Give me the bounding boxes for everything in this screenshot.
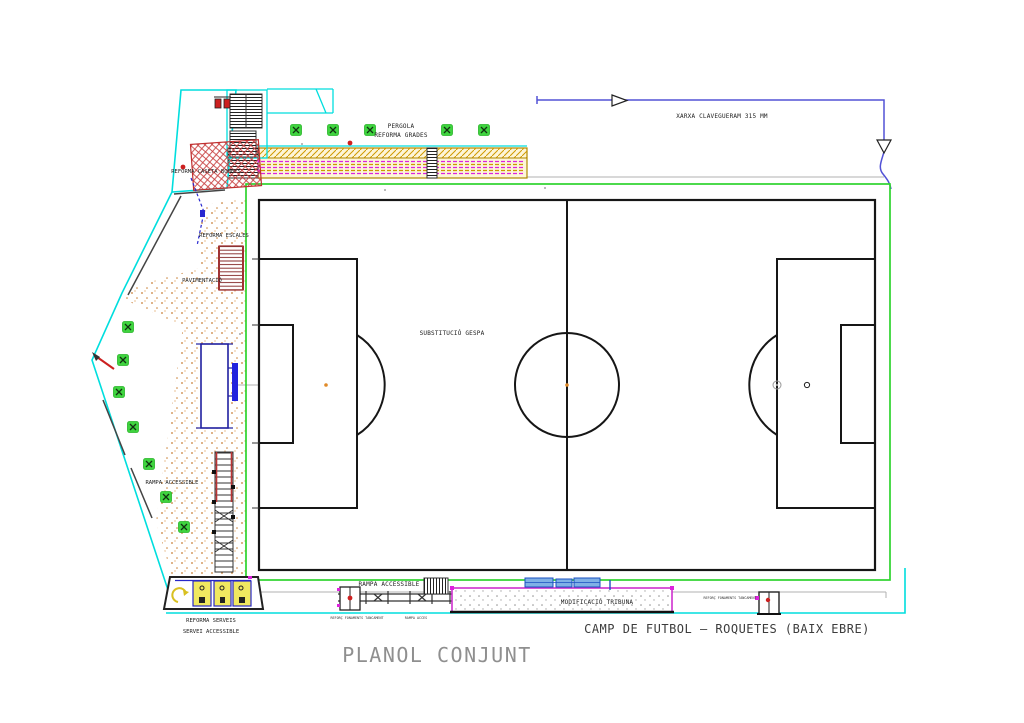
survey-arrow [92,352,114,369]
pump-equipment-icon [214,97,231,108]
tree-icon [128,422,139,433]
sheet-title: PLANOL CONJUNT [342,643,532,667]
flow-arrow-down-icon [877,140,891,153]
label-rampa-acces: RAMPA ACCES [405,616,427,620]
flow-arrow-right-icon [612,95,627,106]
label-pavimentacio: PAVIMENTACIÓ [182,277,222,284]
tree-icon [161,492,172,503]
marker-dot-red [348,141,353,146]
label-reforma-grades: REFORMA GRADES [374,132,428,139]
escales-stair [219,246,243,290]
penalty-area-left [259,259,357,508]
label-xarxa-clavegueram: XARXA CLAVEGUERAM 315 MM [676,113,768,120]
site-plan-canvas: PERGOLA REFORMA GRADES XARXA CLAVEGUERAM… [0,0,1024,723]
blue-panel [232,363,238,401]
label-rampa-accessible-bottom: RAMPA ACCESSIBLE [359,581,420,588]
penalty-arc-left [357,335,385,435]
marker-dot-red [766,598,770,602]
marker-dot-red [348,596,353,601]
penalty-area-right [777,259,875,508]
label-reforma-escales: REFORMA ESCALES [199,233,249,239]
access-ramp-ladder [212,452,235,572]
penalty-spot-right [804,382,809,387]
label-pergola: PERGOLA [388,123,415,130]
sewer-line [537,95,891,189]
services-block [164,576,263,609]
tribuna-block [450,578,674,612]
goal-area-left [259,325,293,443]
project-title: CAMP DE FUTBOL – ROQUETES (BAIX EBRE) [584,622,870,636]
goal-area-right [841,325,875,443]
tree-icon [144,459,155,470]
tree-icon [179,522,190,533]
tree-icon [479,125,490,136]
center-spot [565,383,569,387]
label-reforc-fonaments-left: REFORÇ FONAMENTS TANCAMENT [330,616,383,620]
label-rampa-accessible-left: RAMPA ACCESSIBLE [146,480,199,486]
penalty-spot-left [324,383,328,387]
label-modificacio-tribuna: MODIFICACIÓ TRIBUNA [561,599,634,606]
fence-foundation-right [755,592,781,614]
label-servei-accessible: SERVEI ACCESSIBLE [183,629,239,635]
label-reforma-serveis: REFORMA SERVEIS [186,618,236,624]
tree-icon [291,125,302,136]
tree-icon [123,322,134,333]
label-reforma-caseta-bombes: REFORMA CASETA BOMBES [171,169,241,175]
label-reforc-fonaments-right: REFORÇ FONAMENTS TANCAMENT [703,596,756,600]
drawing-titles: CAMP DE FUTBOL – ROQUETES (BAIX EBRE) PL… [342,622,870,667]
tree-icon [442,125,453,136]
tree-icon [118,355,129,366]
label-substitucio-gespa: SUBSTITUCIÓ GESPA [420,330,485,337]
drawing-sheet: PERGOLA REFORMA GRADES XARXA CLAVEGUERAM… [0,0,1024,723]
tree-icon [328,125,339,136]
caseta-bombes-hatched-roof [190,140,261,191]
tree-icon [114,387,125,398]
